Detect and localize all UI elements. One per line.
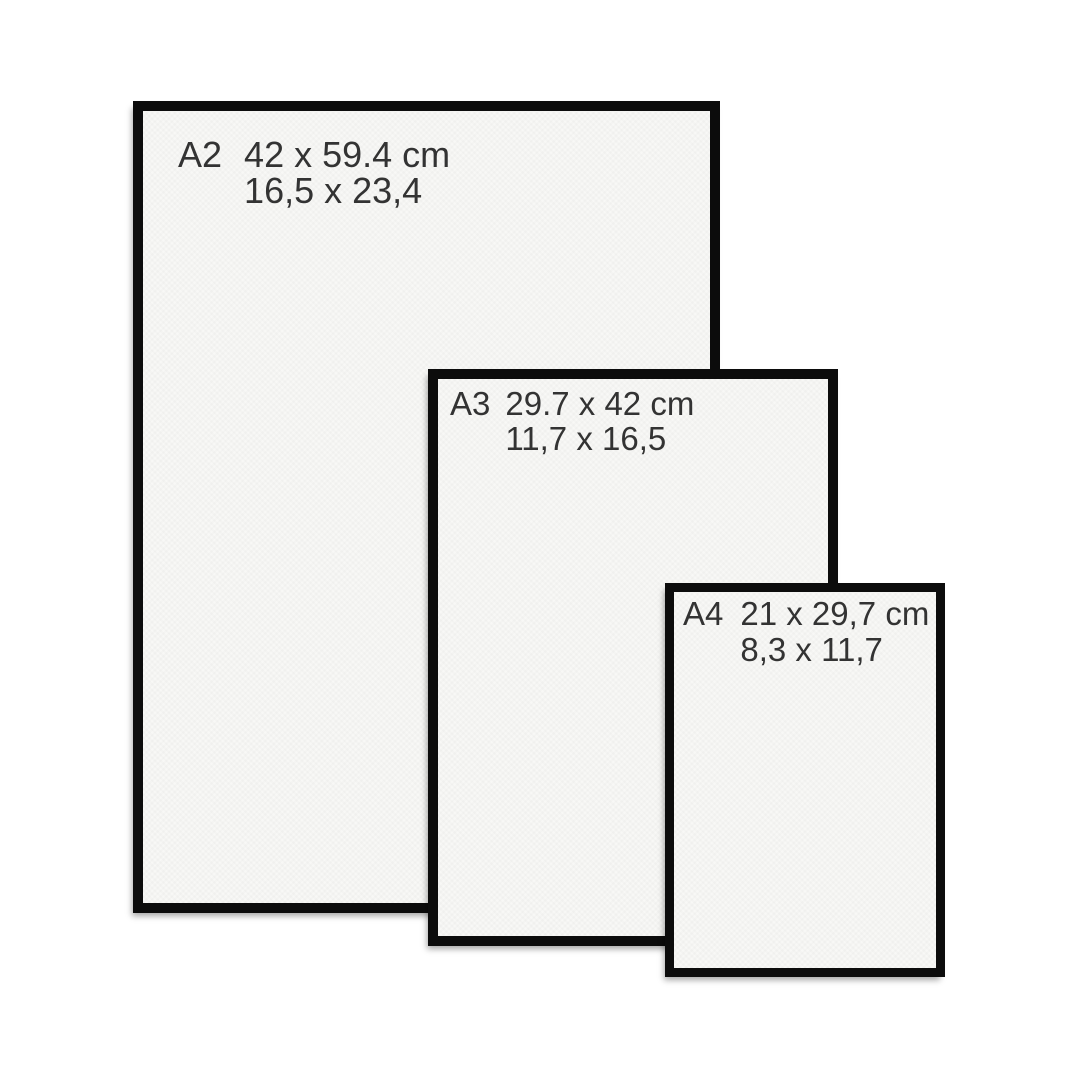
frame-a2-dimensions: 42 x 59.4 cm 16,5 x 23,4 [244,137,450,209]
frame-a4-dimensions: 21 x 29,7 cm 8,3 x 11,7 [740,596,929,668]
frame-a3-size-inches: 11,7 x 16,5 [505,421,666,456]
frame-a2-size-inches: 16,5 x 23,4 [244,173,422,209]
frame-a2-label-row: A2 42 x 59.4 cm 16,5 x 23,4 [178,137,710,209]
frame-a3-size-cm: 29.7 x 42 cm [505,386,694,421]
frame-a4: A4 21 x 29,7 cm 8,3 x 11,7 [665,583,945,977]
frame-a4-label-row: A4 21 x 29,7 cm 8,3 x 11,7 [683,596,936,668]
frame-a4-size-code: A4 [683,596,723,632]
frame-a4-size-cm: 21 x 29,7 cm [740,596,929,632]
frame-a2-size-cm: 42 x 59.4 cm [244,137,450,173]
frame-a3-label-row: A3 29.7 x 42 cm 11,7 x 16,5 [450,386,828,456]
frame-a3-dimensions: 29.7 x 42 cm 11,7 x 16,5 [505,386,694,456]
frame-a3-size-code: A3 [450,386,490,421]
frame-a4-size-inches: 8,3 x 11,7 [740,632,883,668]
size-comparison-canvas: A2 42 x 59.4 cm 16,5 x 23,4 A3 29.7 x 42… [0,0,1080,1080]
frame-a2-size-code: A2 [178,137,222,173]
